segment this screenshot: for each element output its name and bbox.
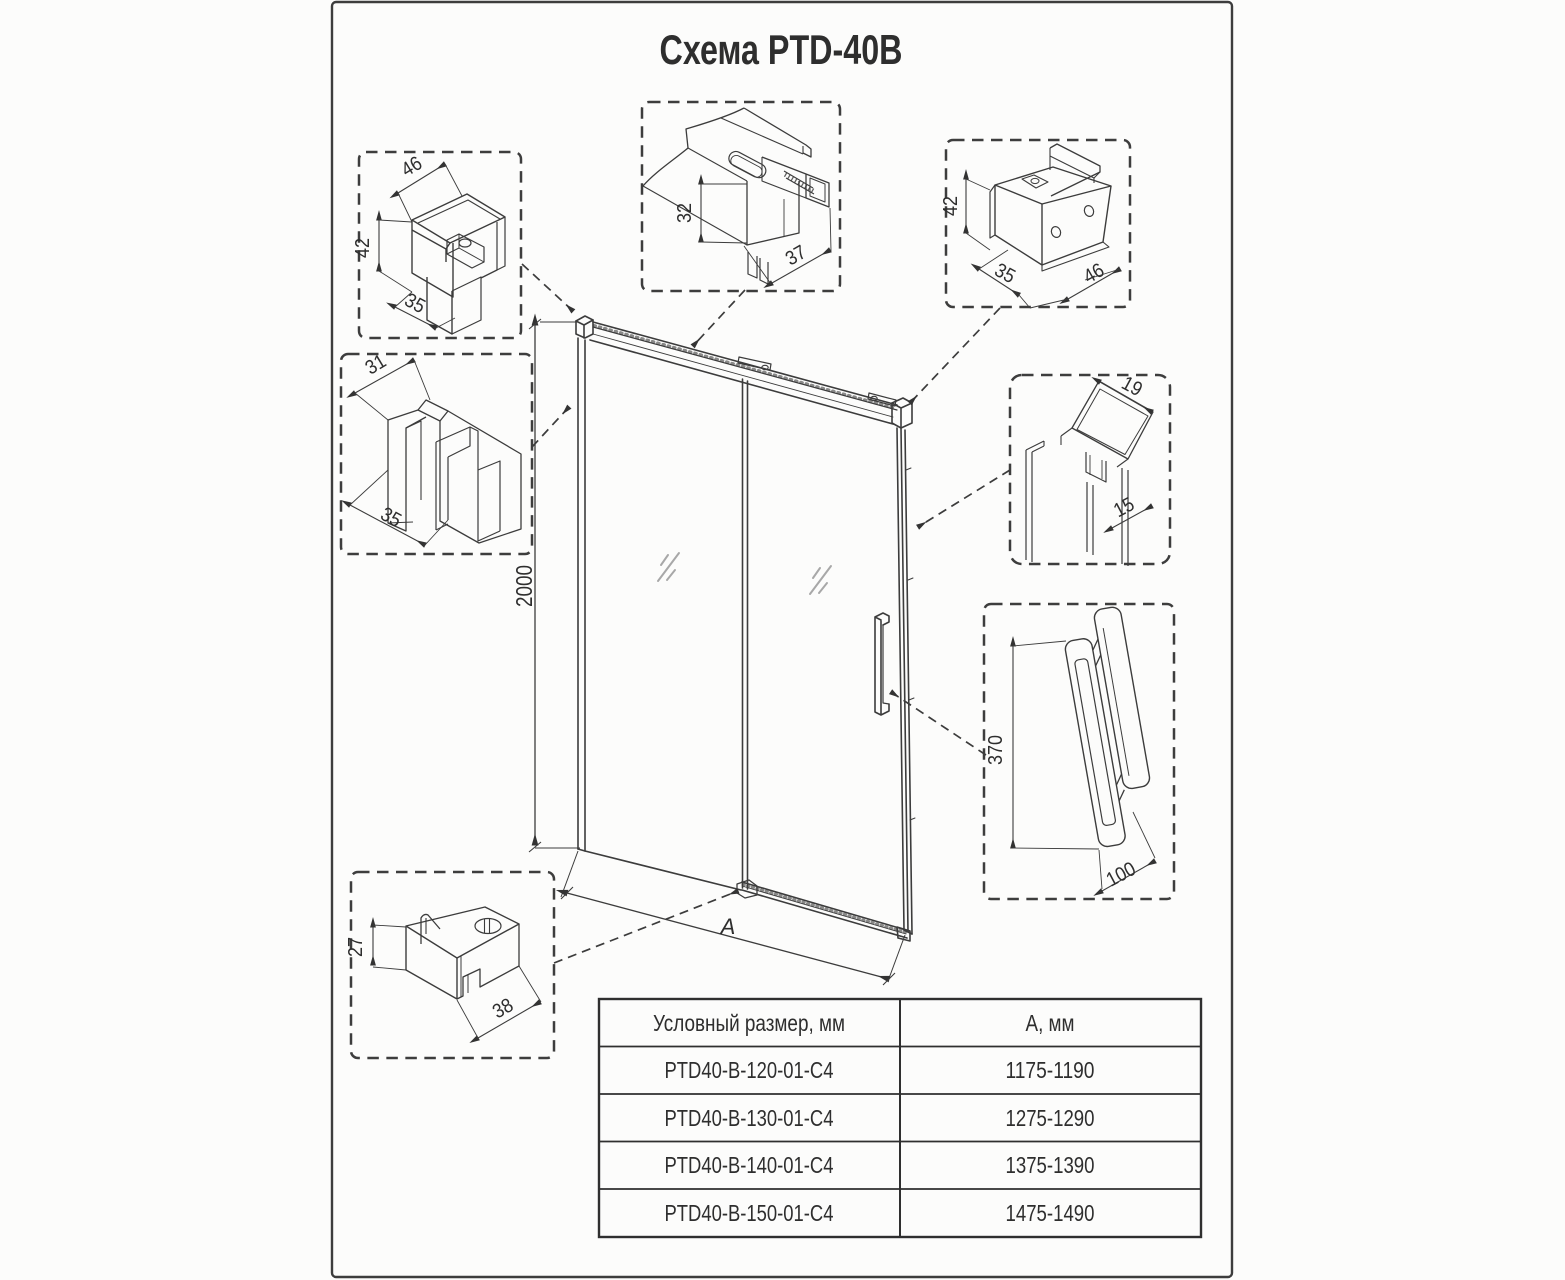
svg-text:42: 42	[940, 196, 962, 216]
svg-text:PTD40-B-120-01-C4: PTD40-B-120-01-C4	[665, 1057, 834, 1083]
svg-text:Схема PTD-40B: Схема PTD-40B	[660, 26, 903, 73]
svg-text:27: 27	[345, 937, 367, 957]
svg-text:PTD40-B-140-01-C4: PTD40-B-140-01-C4	[665, 1152, 834, 1178]
svg-text:PTD40-B-130-01-C4: PTD40-B-130-01-C4	[665, 1105, 834, 1131]
svg-text:1475-1490: 1475-1490	[1006, 1200, 1095, 1226]
svg-text:42: 42	[352, 238, 374, 258]
svg-text:А, мм: А, мм	[1026, 1010, 1075, 1036]
svg-text:2000: 2000	[511, 565, 537, 607]
svg-text:32: 32	[674, 203, 696, 223]
svg-text:370: 370	[985, 735, 1007, 765]
svg-text:1275-1290: 1275-1290	[1006, 1105, 1095, 1131]
svg-text:Условный размер, мм: Условный размер, мм	[653, 1010, 845, 1036]
svg-text:1375-1390: 1375-1390	[1006, 1152, 1095, 1178]
svg-text:A: A	[719, 914, 736, 939]
svg-text:1175-1190: 1175-1190	[1006, 1057, 1095, 1083]
svg-text:PTD40-B-150-01-C4: PTD40-B-150-01-C4	[665, 1200, 834, 1226]
